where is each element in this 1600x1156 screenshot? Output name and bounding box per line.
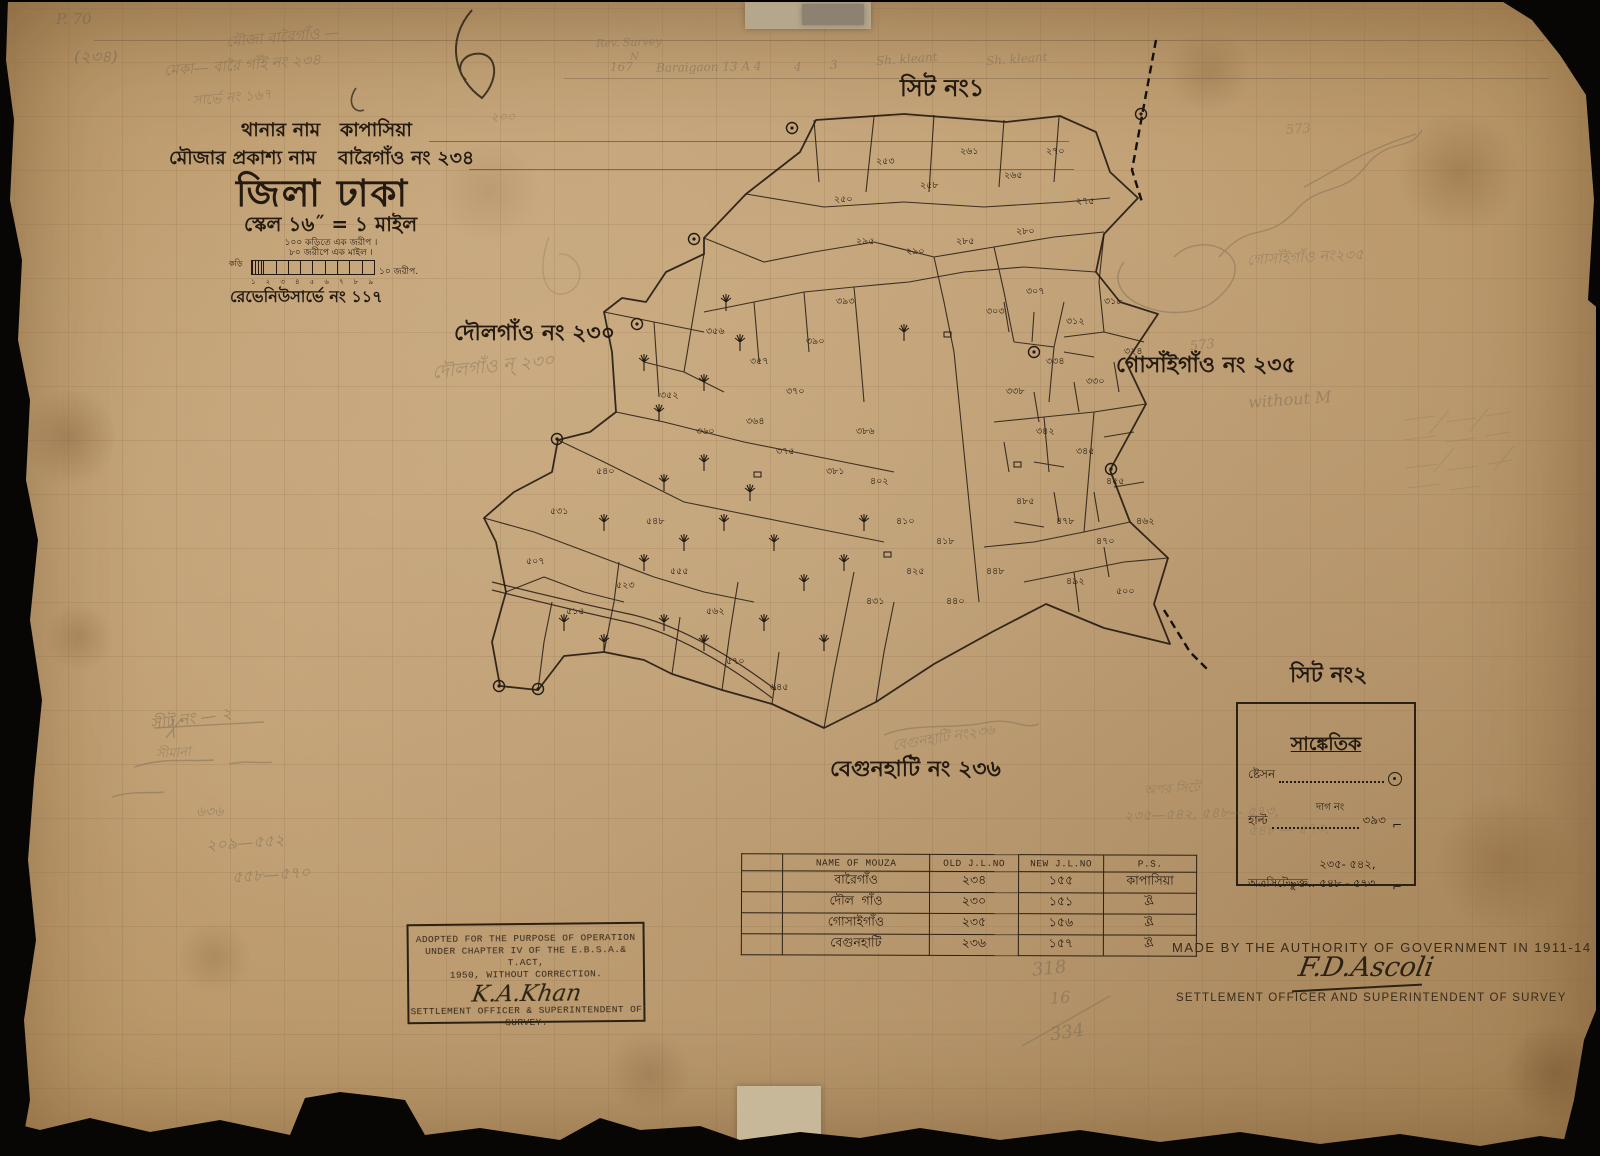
plot-number: ২৯০	[906, 246, 925, 257]
plot-number: ৫৪০	[596, 466, 615, 477]
plot-number: ৪৩১	[866, 596, 885, 607]
table-cell: ২৩৪	[930, 871, 1019, 892]
plot-number: ৩০৩	[986, 306, 1005, 317]
plot-number: ৩৭৫	[776, 446, 795, 457]
table-cell: ১৫৫	[1019, 872, 1104, 893]
plot-number: ৫১৫	[566, 606, 585, 617]
mouza-table-header-row: NAME OF MOUZAOLD J.L.NONEW J.L.NOP.S.	[742, 854, 1197, 873]
plot-number: ৩৫২	[660, 390, 679, 401]
table-row: দৌল গাঁও২৩০১৫১ঐ	[741, 892, 1196, 915]
stamp-line2: UNDER CHAPTER IV OF THE E.B.S.A.& T.ACT,	[409, 944, 643, 970]
road	[492, 590, 772, 698]
table-cell: ১৫৭	[1018, 935, 1103, 956]
table-cell: ঐ	[1103, 914, 1196, 935]
plot-number: ৫৬২	[706, 606, 725, 617]
dashed-line-south	[1164, 610, 1210, 672]
plot-number: ৩৫৬	[706, 326, 725, 337]
pencil-annotation: ২০৯—৫৫২	[205, 827, 285, 859]
plot-number: ৩৬০	[696, 426, 715, 437]
plot-number: ৩৩৪	[1046, 356, 1065, 367]
plot-number: ৬৪৫	[770, 682, 789, 693]
paper-sheet: থানার নাম কাপাসিয়া মৌজার প্রকাশ্য নাম ব…	[4, 2, 1596, 1152]
plot-number: ৩১৮	[1104, 296, 1123, 307]
table-cell: গোসাইগাঁও	[782, 913, 929, 935]
plot-number: ৩৪২	[1036, 426, 1055, 437]
footer-signature: F.D.Ascoli	[1299, 952, 1433, 983]
station-mark	[787, 123, 798, 134]
pencil-annotation: 573	[1189, 337, 1215, 355]
stamp-office2: SURVEY.	[409, 1016, 643, 1030]
legend-row-station: ষ্টেসন	[1248, 766, 1402, 786]
plot-number: ৫০০	[1116, 586, 1135, 597]
table-header-cell: NAME OF MOUZA	[783, 854, 930, 872]
table-blank-cell	[741, 892, 782, 913]
plot-number: ৩৩৮	[1006, 386, 1025, 397]
plot-number: ২৬৫	[1004, 170, 1023, 181]
table-row: গোসাইগাঁও২৩৫১৫৬ঐ	[741, 913, 1196, 936]
plot-number: ৫৩১	[550, 506, 569, 517]
legend-included-label: অত্রসিটেভুক্ত..	[1248, 875, 1315, 894]
table-header-cell: NEW J.L.NO	[1019, 855, 1104, 872]
plot-number: ৪১৮	[936, 536, 955, 547]
bracket-mark: ⌐	[1392, 818, 1402, 832]
pencil-fractions	[1404, 408, 1514, 490]
plot-number: ২৯৫	[856, 236, 875, 247]
table-header-cell: P.S.	[1104, 855, 1197, 872]
plot-number: ৪৭০	[1096, 536, 1115, 547]
legend-station-label: ষ্টেসন	[1248, 766, 1275, 786]
pencil-annotation: ৬৩৬	[196, 800, 223, 824]
table-cell: ২৩০	[929, 892, 1018, 913]
legend-halt-value: ৩৯৩	[1363, 812, 1386, 832]
pencil-annotation: 3	[830, 58, 838, 72]
pencil-annotation: ২০০	[490, 108, 515, 129]
station-mark	[632, 319, 643, 330]
plot-number: ৩৪৫	[1076, 446, 1095, 457]
table-cell: ঐ	[1103, 893, 1196, 914]
ditto-mark: ঐ	[1141, 913, 1159, 935]
plot-number: ২৭৫	[1076, 196, 1095, 207]
table-header-cell: OLD J.L.NO	[930, 854, 1019, 871]
plot-number: ৩৫৭	[750, 356, 769, 367]
plot-number: ৩৮১	[826, 466, 845, 477]
plot-number: ৫০৭	[526, 556, 545, 567]
pencil-annotation: Baraigaon 13 A 4	[656, 59, 762, 75]
legend-title: সাঙ্কেতিক	[1238, 730, 1414, 762]
plot-number: ৪৭৮	[1056, 516, 1075, 527]
tape-patch-top-dark	[802, 4, 864, 25]
bracket-mark: ⌐	[1392, 880, 1402, 894]
table-cell: বেগুনহাটি	[782, 934, 929, 956]
ditto-mark: ঐ	[1141, 934, 1159, 956]
station-icon	[1388, 772, 1402, 786]
scanned-map-page: থানার নাম কাপাসিয়া মৌজার প্রকাশ্য নাম ব…	[0, 0, 1600, 1156]
plot-number: ৩৩০	[1086, 376, 1105, 387]
dashed-line-north	[1132, 40, 1156, 202]
plot-number: ৪৮৫	[1016, 496, 1035, 507]
plot-number: ৪০২	[870, 476, 889, 487]
table-cell: ২৩৫	[929, 913, 1018, 934]
table-row: বারৈগাঁও২৩৪১৫৫কাপাসিয়া	[742, 871, 1197, 894]
plot-number: ২৫০	[834, 194, 853, 205]
pencil-annotation: Rev. Survey	[596, 35, 662, 50]
plot-number: ৩৯৩	[836, 296, 855, 307]
table-cell: ১৫১	[1018, 893, 1103, 914]
pencil-annotation: অপর সিটে	[1143, 779, 1200, 803]
plot-number: ২৫৮	[920, 180, 939, 191]
plot-number: ৫৫৫	[670, 566, 689, 577]
adoption-stamp: ADOPTED FOR THE PURPOSE OF OPERATION UND…	[406, 922, 645, 1024]
table-blank-cell	[741, 913, 782, 934]
plot-number: ৪৬২	[1136, 516, 1155, 527]
plot-number: ২৭০	[1046, 146, 1065, 157]
table-row: বেগুনহাটি২৩৬১৫৭ঐ	[741, 934, 1196, 957]
plot-number: ৪৫৫	[1106, 476, 1125, 487]
table-blank-col	[742, 854, 783, 871]
plot-number: ৩৭০	[786, 386, 805, 397]
legend-included-value: ২৩৫- ৫৪২, ৫৪৮ - ৫৭৩	[1319, 856, 1388, 894]
table-cell: দৌল গাঁও	[782, 892, 929, 914]
plot-number: ৩১২	[1066, 316, 1085, 327]
legend-box: সাঙ্কেতিক ষ্টেসন দাগ নং হাল্ট ৩৯৩ ⌐ অত্র…	[1236, 702, 1416, 886]
plot-number: ৩৮৬	[856, 426, 875, 437]
pencil-annotation: ৫৫৮—৫৭০	[231, 859, 311, 891]
pencil-annotation: (২৩৪)	[74, 44, 118, 71]
plot-number: ৩০৭	[1026, 286, 1045, 297]
table-cell: ১৫৬	[1018, 914, 1103, 935]
table-blank-cell	[741, 934, 782, 955]
plot-number: ২৬১	[960, 146, 979, 157]
mouza-table: NAME OF MOUZAOLD J.L.NONEW J.L.NOP.S. বা…	[741, 853, 1197, 957]
plot-number: ৪১০	[896, 516, 915, 527]
plot-number: ৫৪৮	[646, 516, 665, 527]
pencil-annotation: 318	[1031, 956, 1067, 980]
footer-office-title: SETTLEMENT OFFICER AND SUPERINTENDENT OF…	[1176, 992, 1567, 1004]
pencil-annotation: ৫৪৮ — ৫৭৩,	[1248, 817, 1331, 844]
plot-number-layer: ২৫০২৫৩২৫৮২৬১২৬৫২৭০২৭৫২৮০২৮৫২৯০২৯৫৩০৩৩০৭৩…	[526, 146, 1155, 693]
table-cell: কাপাসিয়া	[1104, 872, 1197, 893]
plot-number: ৪২৫	[906, 566, 925, 577]
plot-number: ৪৪৮	[986, 566, 1005, 577]
station-mark	[1029, 347, 1040, 358]
pencil-annotation: 573	[1286, 121, 1312, 138]
stamp-signature: K.A.Khan	[470, 980, 583, 1007]
plot-number: ৫৭০	[726, 656, 745, 667]
plot-number: ৩৯০	[806, 336, 825, 347]
plot-number: ৩৬৪	[746, 416, 765, 427]
plot-number: ২৫৩	[876, 156, 895, 167]
station-mark	[689, 234, 700, 245]
table-cell: বারৈগাঁও	[783, 871, 930, 893]
plot-number: ৩২৪	[1124, 346, 1143, 357]
plot-number: ৪৪০	[946, 596, 965, 607]
pencil-annotation: সীমানা	[155, 743, 191, 766]
table-cell: ২৩৬	[929, 934, 1018, 955]
pencil-annotation: P. 70	[56, 10, 92, 28]
pencil-annotation: 16	[1049, 987, 1071, 1007]
dotted-leader	[1279, 780, 1384, 783]
plot-number: ২৮০	[1016, 226, 1035, 237]
ink-flourish	[456, 10, 494, 98]
plot-number: ২৮৫	[956, 236, 975, 247]
ink-flourish	[351, 88, 364, 111]
legend-row-included: অত্রসিটেভুক্ত.. ২৩৫- ৫৪২, ৫৪৮ - ৫৭৩ ⌐	[1248, 856, 1402, 894]
table-blank-cell	[742, 871, 783, 892]
plot-number: ৪৯২	[1066, 576, 1085, 587]
plot-number: ৫২৩	[616, 580, 635, 591]
pencil-annotation: 4	[794, 60, 802, 74]
pencil-annotation: 167	[610, 60, 633, 74]
ditto-mark: ঐ	[1141, 892, 1159, 914]
